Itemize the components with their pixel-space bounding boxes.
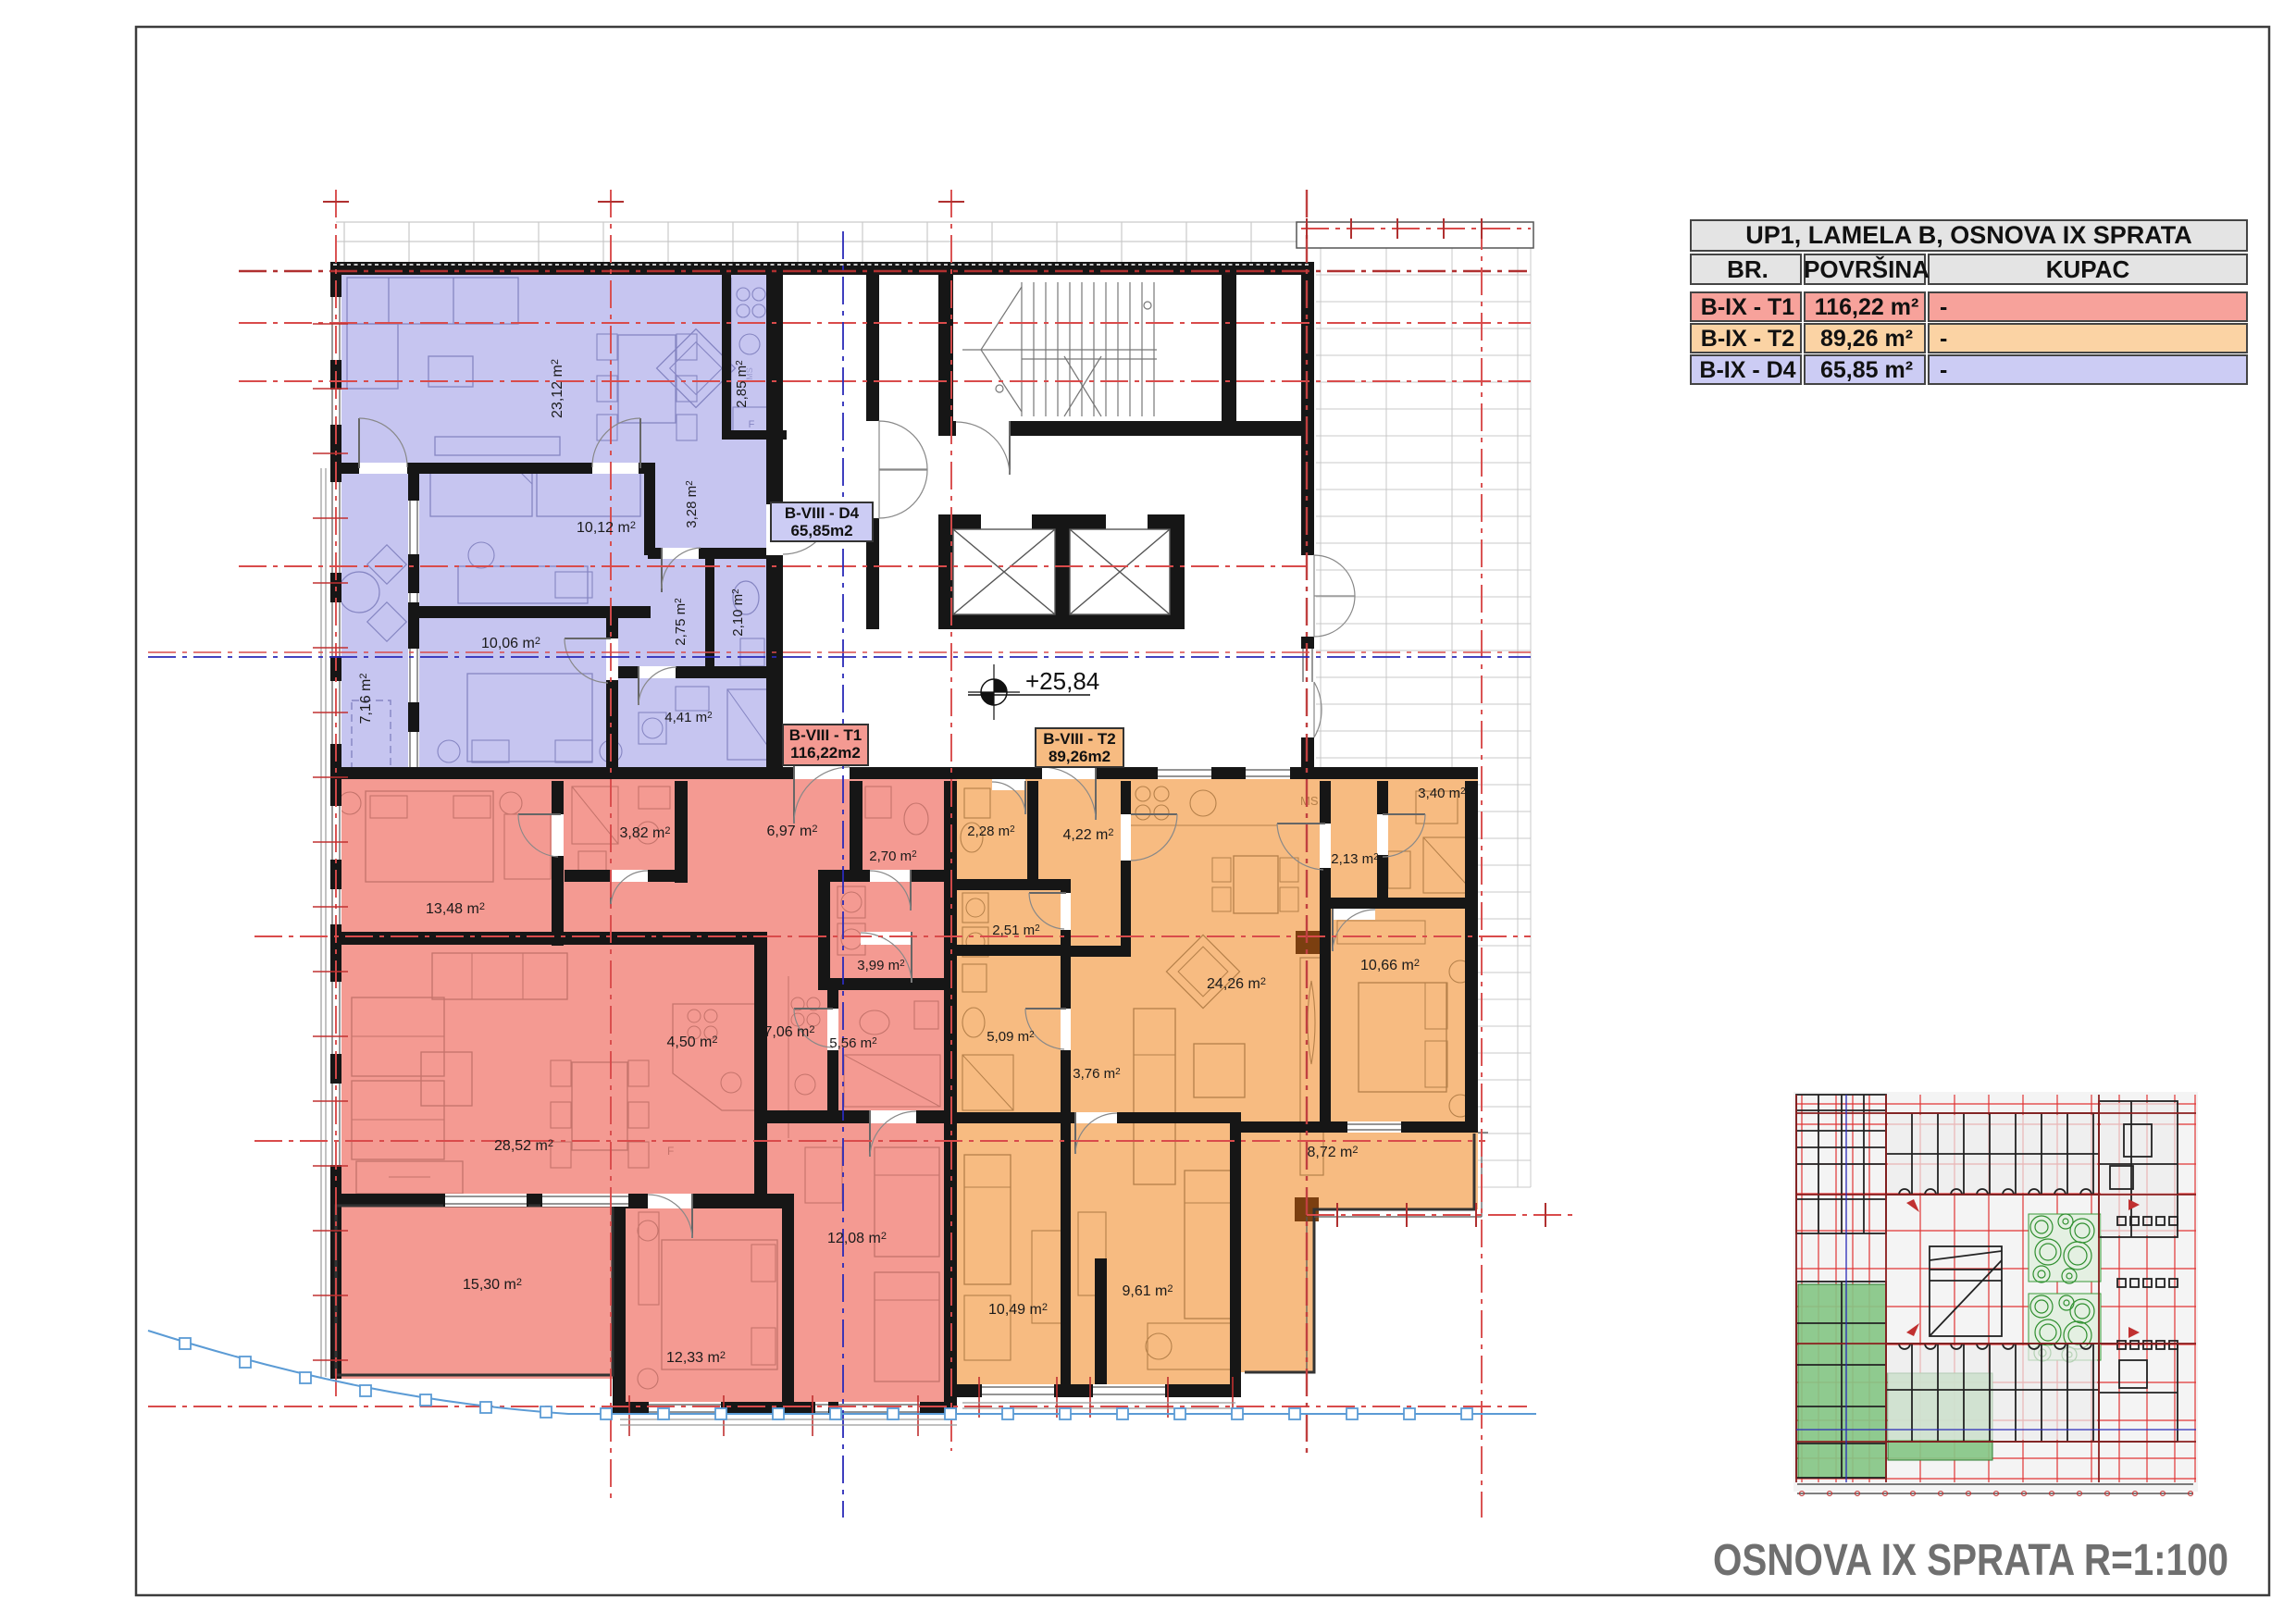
svg-text:23,12 m2: 23,12 m2 — [550, 359, 565, 418]
svg-text:9,61 m2: 9,61 m2 — [1122, 1283, 1173, 1299]
svg-text:2,10 m2: 2,10 m2 — [730, 588, 746, 637]
svg-text:4,41 m2: 4,41 m2 — [664, 710, 713, 725]
svg-text:3,28 m2: 3,28 m2 — [684, 480, 700, 528]
svg-text:2,70 m2: 2,70 m2 — [869, 849, 917, 864]
svg-text:2,85 m2: 2,85 m2 — [734, 360, 750, 408]
svg-text:B-IX - T2: B-IX - T2 — [1701, 326, 1794, 352]
svg-text:65,85 m²: 65,85 m² — [1820, 357, 1913, 383]
svg-text:-: - — [1940, 294, 1947, 320]
svg-text:3,82 m2: 3,82 m2 — [619, 825, 670, 841]
svg-text:12,08 m2: 12,08 m2 — [827, 1231, 887, 1246]
svg-text:2,13 m2: 2,13 m2 — [1331, 851, 1379, 867]
svg-text:6,97 m2: 6,97 m2 — [766, 824, 817, 839]
svg-text:OSNOVA IX SPRATA R=1:100: OSNOVA IX SPRATA R=1:100 — [1713, 1536, 2228, 1585]
svg-text:89,26m2: 89,26m2 — [1049, 748, 1111, 765]
svg-text:B-VIII - D4: B-VIII - D4 — [785, 504, 860, 522]
svg-text:BR.: BR. — [1727, 255, 1769, 283]
svg-text:MS: MS — [1300, 794, 1319, 808]
svg-text:28,52 m2: 28,52 m2 — [494, 1138, 553, 1154]
svg-text:10,06 m2: 10,06 m2 — [481, 636, 540, 651]
svg-text:4,50 m2: 4,50 m2 — [666, 1035, 717, 1050]
svg-text:3,76 m2: 3,76 m2 — [1073, 1066, 1121, 1082]
svg-text:10,49 m2: 10,49 m2 — [988, 1302, 1048, 1318]
svg-text:7,16 m2: 7,16 m2 — [358, 673, 374, 724]
svg-text:F: F — [667, 1145, 674, 1158]
svg-text:5,09 m2: 5,09 m2 — [987, 1029, 1035, 1045]
svg-text:-: - — [1940, 357, 1947, 383]
svg-text:24,26 m2: 24,26 m2 — [1207, 976, 1266, 992]
svg-text:2,75 m2: 2,75 m2 — [673, 598, 689, 646]
svg-text:B-IX - T1: B-IX - T1 — [1701, 294, 1794, 320]
svg-text:10,66 m2: 10,66 m2 — [1360, 958, 1420, 973]
svg-text:12,33 m2: 12,33 m2 — [666, 1350, 726, 1366]
svg-text:KUPAC: KUPAC — [2046, 255, 2130, 283]
svg-text:-: - — [1940, 326, 1947, 352]
svg-text:B-VIII - T2: B-VIII - T2 — [1043, 730, 1115, 748]
svg-text:2,51 m2: 2,51 m2 — [992, 923, 1040, 938]
svg-text:15,30 m2: 15,30 m2 — [463, 1277, 522, 1293]
svg-text:POVRŠINA: POVRŠINA — [1804, 255, 1930, 283]
svg-text:4,22 m2: 4,22 m2 — [1062, 827, 1113, 843]
svg-text:89,26 m²: 89,26 m² — [1820, 326, 1913, 352]
svg-text:UP1, LAMELA B, OSNOVA IX SPRAT: UP1, LAMELA B, OSNOVA IX SPRATA — [1745, 221, 2192, 249]
svg-text:+25,84: +25,84 — [1025, 667, 1099, 695]
svg-text:116,22m2: 116,22m2 — [790, 744, 861, 762]
svg-text:3,40 m2: 3,40 m2 — [1418, 786, 1466, 801]
svg-text:2,28 m2: 2,28 m2 — [967, 824, 1015, 839]
svg-text:F: F — [749, 419, 755, 430]
svg-text:116,22 m²: 116,22 m² — [1815, 294, 1919, 320]
svg-text:B-VIII - T1: B-VIII - T1 — [789, 726, 862, 744]
svg-text:3,99 m2: 3,99 m2 — [857, 958, 905, 973]
svg-text:5,56 m2: 5,56 m2 — [829, 1035, 877, 1051]
svg-text:7,06 m2: 7,06 m2 — [763, 1024, 814, 1040]
svg-text:65,85m2: 65,85m2 — [790, 522, 852, 539]
svg-text:10,12 m2: 10,12 m2 — [577, 520, 636, 536]
svg-text:B-IX - D4: B-IX - D4 — [1699, 357, 1795, 383]
svg-text:8,72 m2: 8,72 m2 — [1307, 1145, 1358, 1160]
svg-text:13,48 m2: 13,48 m2 — [426, 901, 485, 917]
